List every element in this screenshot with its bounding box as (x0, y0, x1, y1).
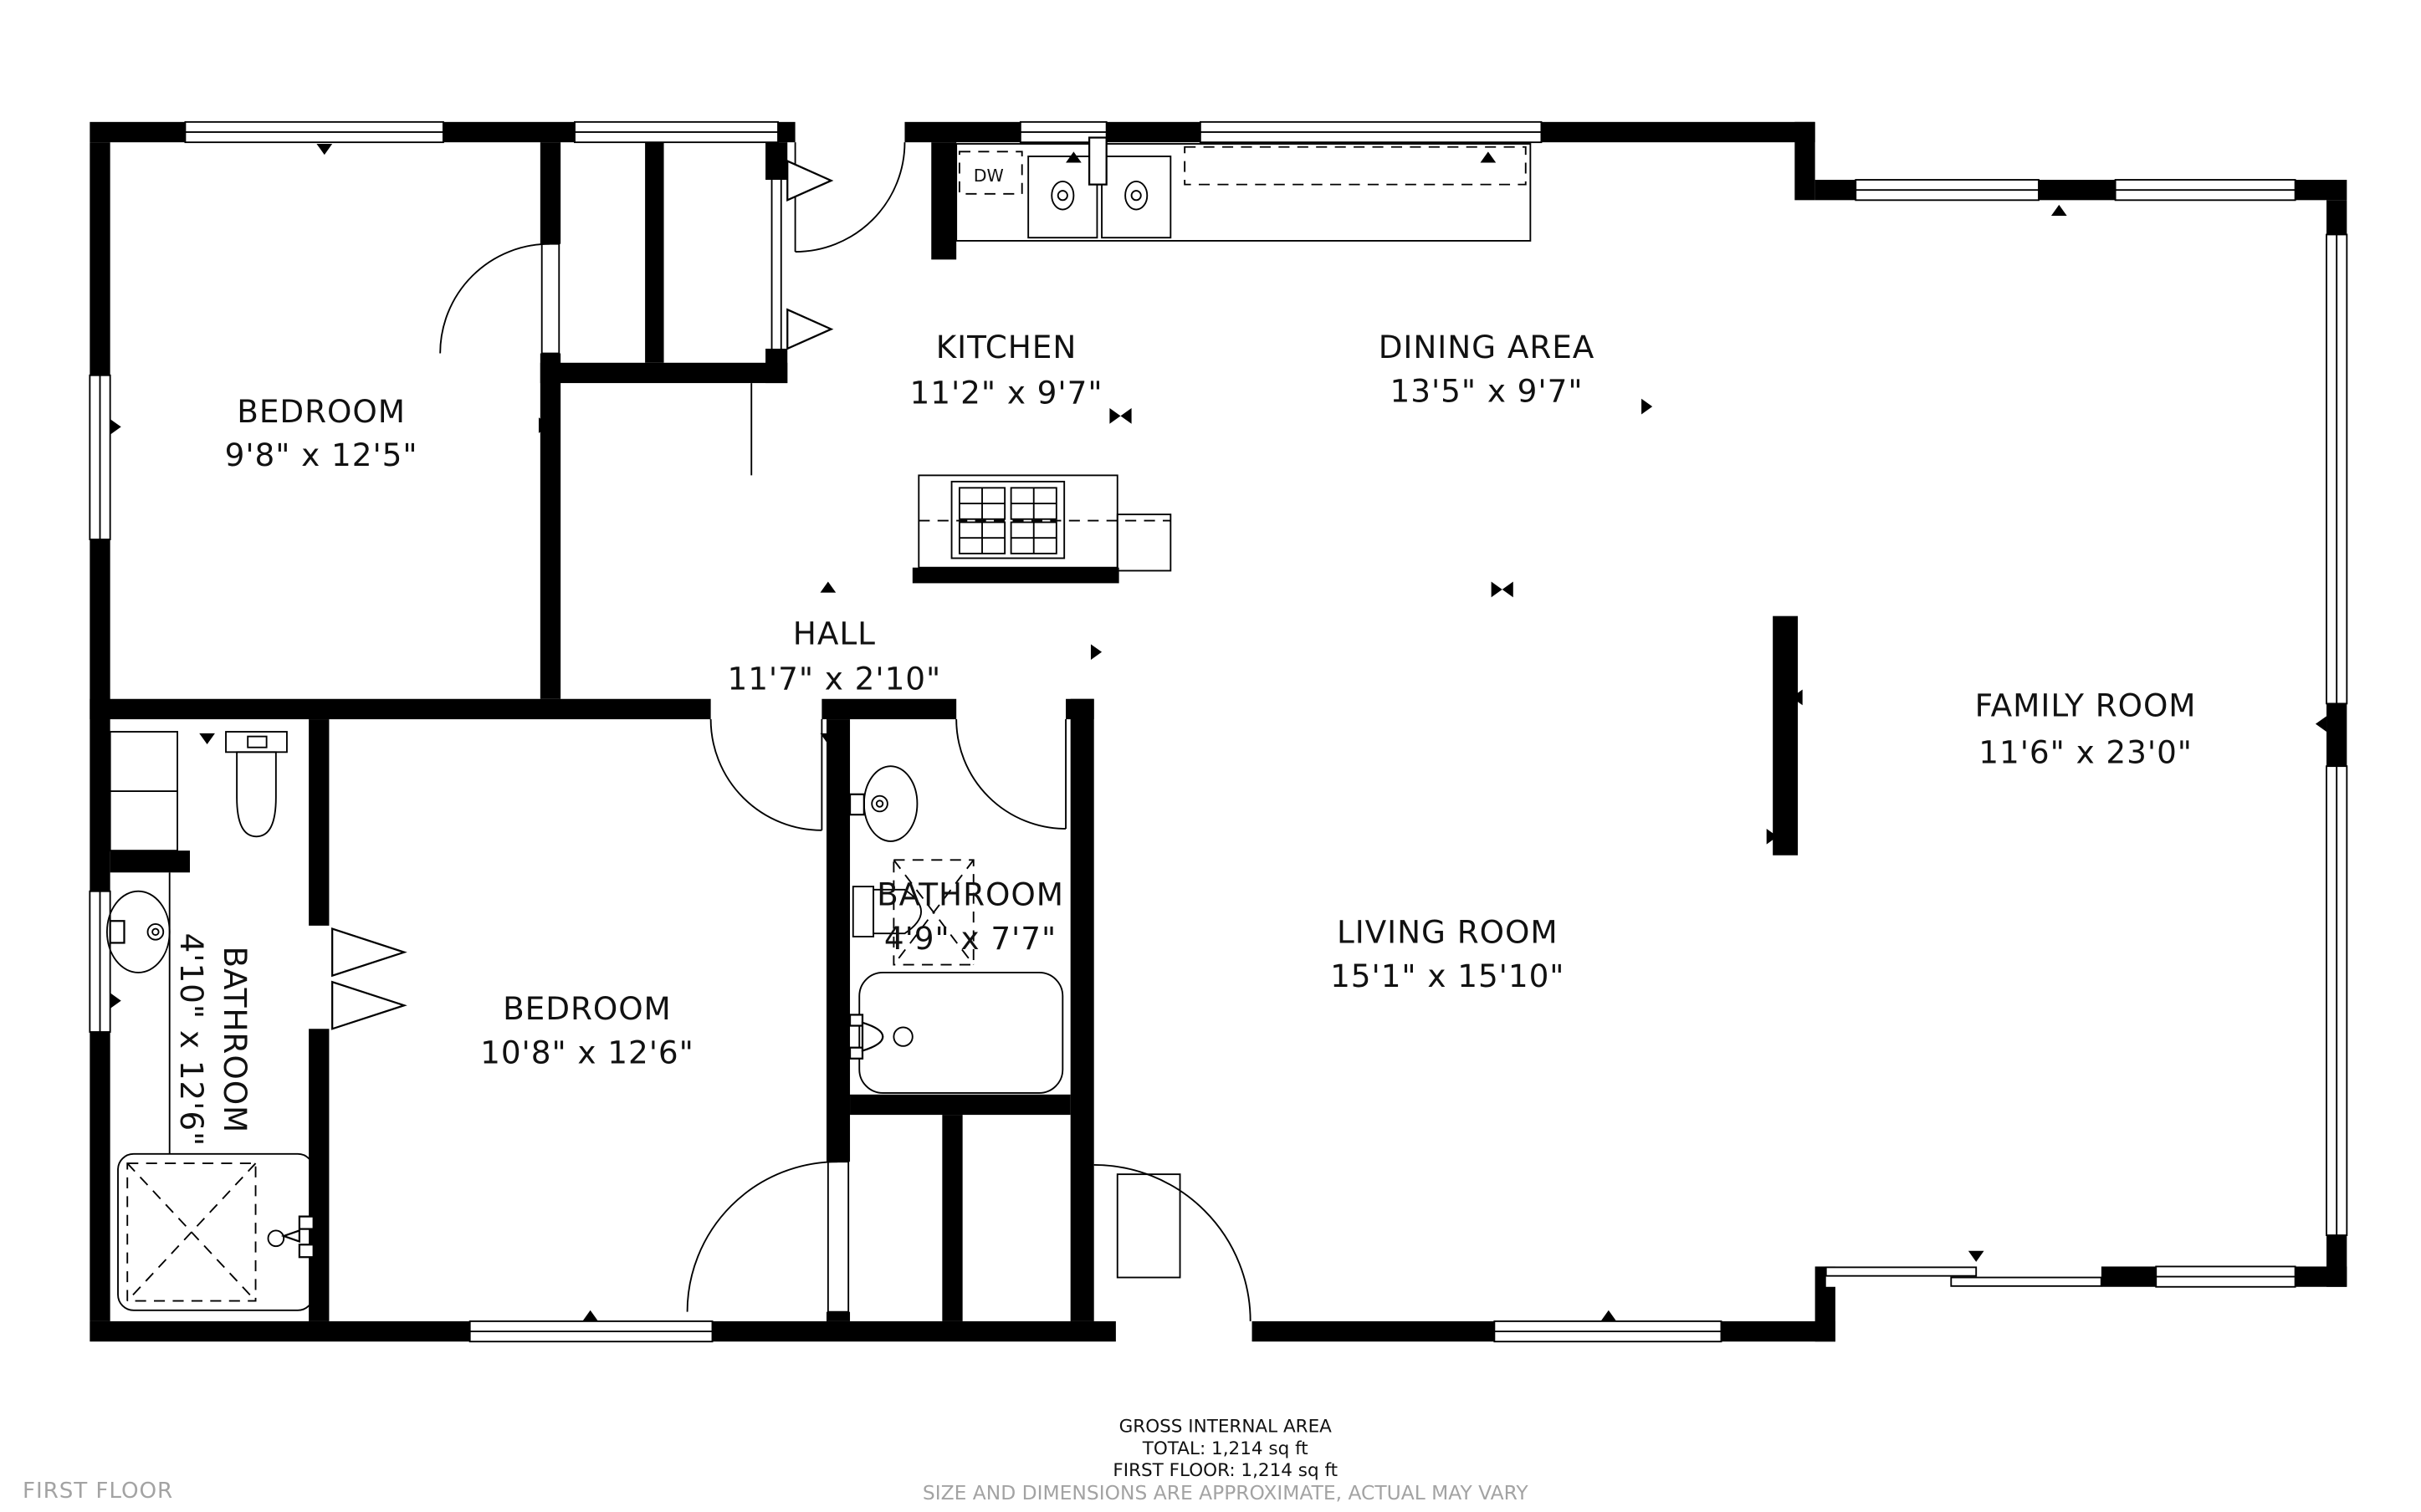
dishwasher-label: DW (974, 166, 1004, 186)
bathroom-left-fixtures (107, 732, 314, 1310)
footer: GROSS INTERNAL AREA TOTAL: 1,214 sq ft F… (923, 1417, 1529, 1504)
room-label-bathroom-left: BATHROOM (217, 946, 253, 1133)
doors (332, 142, 1251, 1321)
bathtub (850, 973, 1062, 1093)
room-label-bedroom-top-left: BEDROOM (237, 393, 406, 430)
room-dims-bathroom-small: 4'9" x 7'7" (884, 920, 1057, 957)
kitchen-counter: DW (956, 138, 1530, 241)
room-dims-bedroom-top-left: 9'8" x 12'5" (225, 437, 418, 473)
room-dims-hall: 11'7" x 2'10" (728, 661, 942, 697)
room-dims-bedroom-bottom: 10'8" x 12'6" (480, 1034, 694, 1070)
walls (90, 122, 2347, 1341)
room-dims-kitchen: 11'2" x 9'7" (910, 374, 1103, 411)
shower (118, 1154, 314, 1310)
footer-first-floor-area: FIRST FLOOR: 1,214 sq ft (1113, 1460, 1338, 1481)
room-label-living-room: LIVING ROOM (1337, 913, 1559, 950)
pedestal-sink (107, 891, 170, 973)
room-dims-dining-area: 13'5" x 9'7" (1390, 373, 1584, 410)
sink (850, 766, 917, 841)
room-label-dining-area: DINING AREA (1379, 329, 1595, 365)
sliding-door (1826, 1266, 2101, 1286)
windows (90, 122, 2347, 1341)
floor-name-label: FIRST FLOOR (23, 1479, 173, 1504)
footer-disclaimer: SIZE AND DIMENSIONS ARE APPROXIMATE, ACT… (923, 1481, 1529, 1504)
room-label-bathroom-small: BATHROOM (877, 876, 1064, 913)
room-dims-bathroom-left: 4'10" x 12'6" (173, 933, 210, 1147)
room-label-family-room: FAMILY ROOM (1975, 687, 2197, 723)
kitchen-island-stove (919, 475, 1170, 570)
toilet (226, 732, 287, 836)
footer-total: TOTAL: 1,214 sq ft (1142, 1438, 1308, 1459)
room-dims-family-room: 11'6" x 23'0" (1978, 733, 2193, 770)
room-dims-living-room: 15'1" x 15'10" (1330, 958, 1564, 994)
floor-plan-svg: DW (0, 0, 2421, 1512)
floor-plan-page: DW (0, 0, 2421, 1512)
room-label-hall: HALL (793, 615, 876, 651)
dimension-markers (110, 144, 2326, 1321)
room-label-bedroom-bottom: BEDROOM (503, 990, 672, 1027)
room-label-kitchen: KITCHEN (936, 329, 1077, 365)
footer-gross-area: GROSS INTERNAL AREA (1119, 1417, 1333, 1438)
room-labels: BEDROOM 9'8" x 12'5" KITCHEN 11'2" x 9'7… (173, 329, 2197, 1147)
